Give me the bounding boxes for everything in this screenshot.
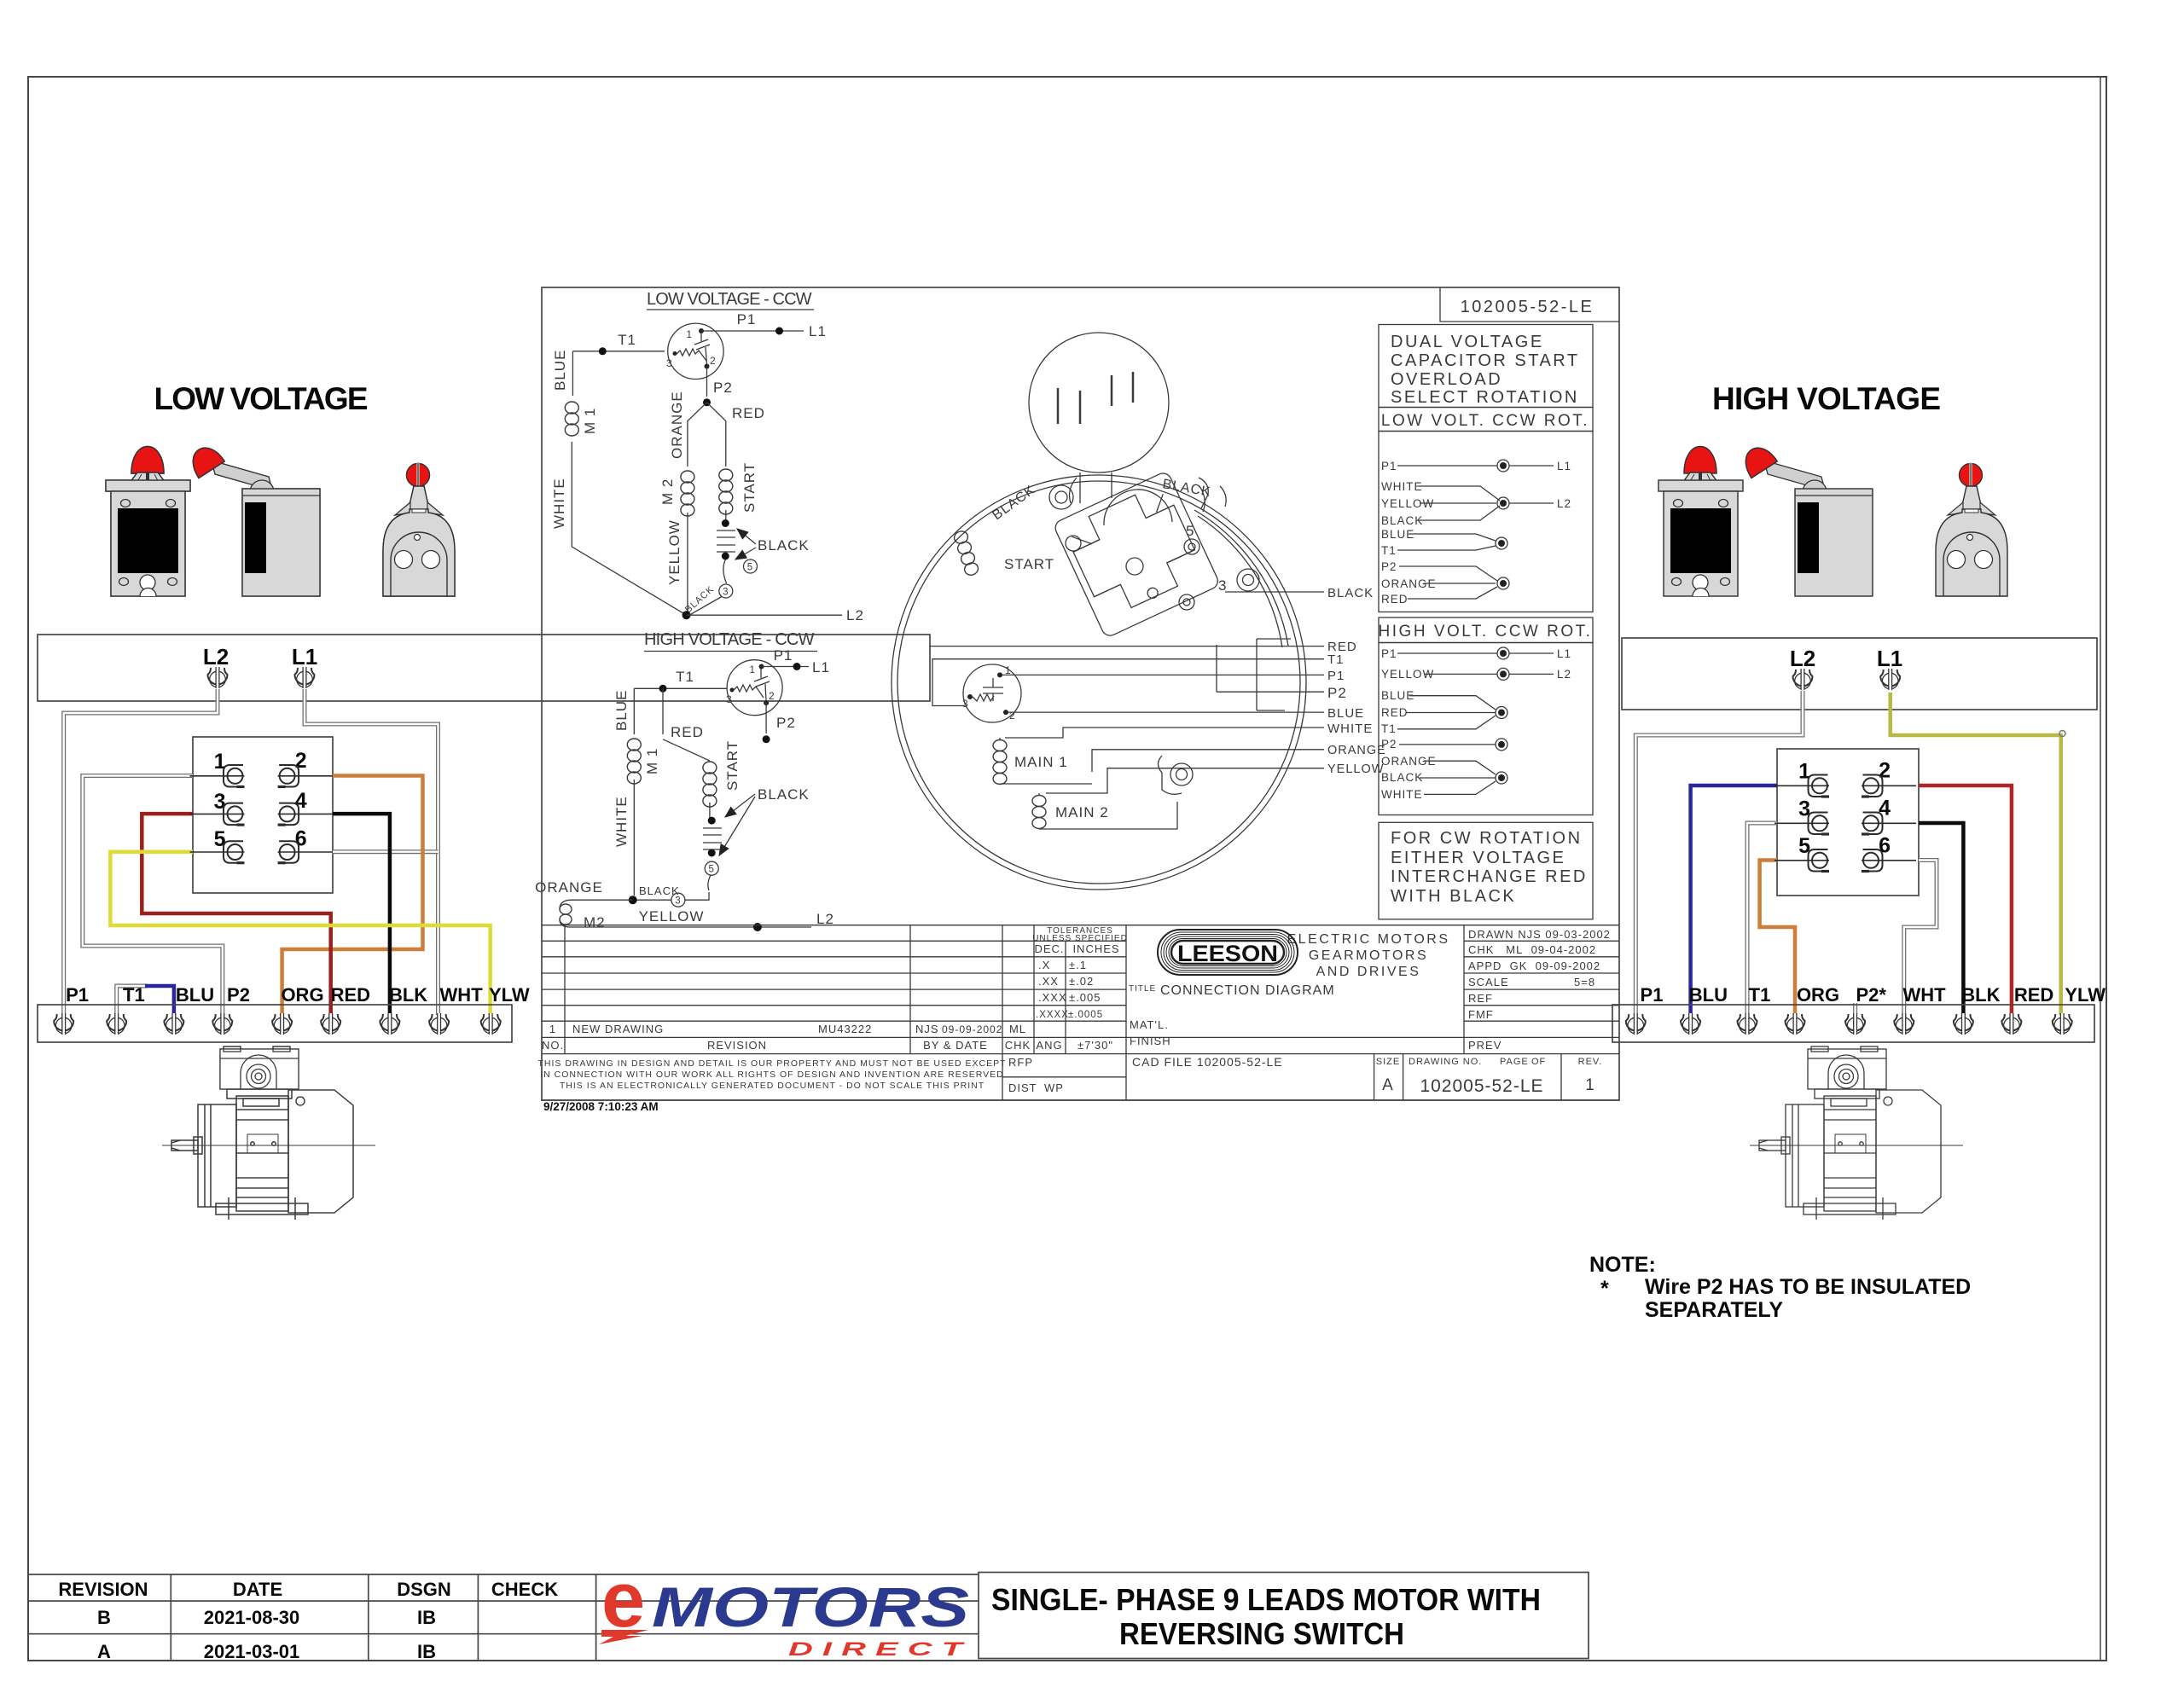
svg-text:5=8: 5=8 xyxy=(1574,976,1595,988)
svg-text:START: START xyxy=(741,462,758,513)
svg-text:DRAWING NO.: DRAWING NO. xyxy=(1409,1057,1482,1067)
svg-text:3: 3 xyxy=(666,357,673,369)
svg-text:3: 3 xyxy=(675,896,681,907)
svg-text:P2: P2 xyxy=(1381,738,1397,751)
svg-text:T1: T1 xyxy=(676,669,694,685)
svg-text:INCHES: INCHES xyxy=(1072,942,1119,955)
svg-text:BLACK: BLACK xyxy=(758,786,810,803)
svg-text:P1: P1 xyxy=(1327,669,1345,683)
svg-text:WHITE: WHITE xyxy=(551,478,567,529)
svg-text:BLUE: BLUE xyxy=(1327,706,1364,721)
svg-text:L2: L2 xyxy=(1790,646,1815,671)
svg-text:YELLOW: YELLOW xyxy=(639,908,705,925)
svg-text:CHK: CHK xyxy=(1005,1039,1031,1052)
svg-text:BLACK: BLACK xyxy=(1327,586,1374,600)
svg-text:REVISION: REVISION xyxy=(58,1579,148,1600)
svg-text:6: 6 xyxy=(295,827,307,851)
svg-text:CHK ML 09-04-2002: CHK ML 09-04-2002 xyxy=(1468,943,1596,956)
svg-text:BLACK: BLACK xyxy=(683,584,717,615)
svg-text:RED: RED xyxy=(331,984,370,1006)
svg-text:LOW VOLTAGE: LOW VOLTAGE xyxy=(154,381,369,416)
svg-text:RED: RED xyxy=(671,724,704,740)
svg-text:SELECT ROTATION: SELECT ROTATION xyxy=(1391,388,1579,407)
svg-text:L1: L1 xyxy=(1557,647,1571,660)
svg-text:DSGN: DSGN xyxy=(397,1579,451,1600)
svg-text:T1: T1 xyxy=(1327,652,1345,667)
svg-text:3: 3 xyxy=(726,693,733,705)
svg-text:REVERSING SWITCH: REVERSING SWITCH xyxy=(1119,1616,1404,1651)
svg-text:3: 3 xyxy=(1218,577,1227,594)
svg-text:102005-52-LE: 102005-52-LE xyxy=(1420,1076,1543,1096)
svg-text:T1: T1 xyxy=(1381,544,1397,557)
svg-text:*: * xyxy=(1600,1277,1609,1301)
svg-text:P2: P2 xyxy=(776,715,796,731)
svg-text:L2: L2 xyxy=(1557,668,1571,681)
svg-text:2: 2 xyxy=(1879,759,1891,783)
svg-text:4: 4 xyxy=(295,789,307,813)
svg-text:IB: IB xyxy=(417,1641,436,1662)
svg-text:BLK: BLK xyxy=(1961,984,2000,1006)
svg-text:RED: RED xyxy=(2014,984,2053,1006)
svg-text:ELECTRIC MOTORS: ELECTRIC MOTORS xyxy=(1287,932,1450,947)
svg-text:AND DRIVES: AND DRIVES xyxy=(1316,965,1421,979)
svg-text:DATE: DATE xyxy=(233,1579,282,1600)
svg-text:P2: P2 xyxy=(1327,685,1347,701)
svg-text:L2: L2 xyxy=(203,644,229,670)
svg-text:CHECK: CHECK xyxy=(491,1579,558,1600)
svg-text:±.005: ±.005 xyxy=(1069,991,1101,1004)
svg-text:1: 1 xyxy=(549,1023,556,1035)
svg-text:3: 3 xyxy=(962,698,969,710)
svg-text:MAIN 1: MAIN 1 xyxy=(1014,754,1068,770)
svg-text:5: 5 xyxy=(1186,523,1194,539)
svg-text:D I R E C T: D I R E C T xyxy=(788,1638,965,1660)
svg-text:1: 1 xyxy=(1585,1076,1595,1094)
svg-text:P1: P1 xyxy=(1641,984,1664,1006)
svg-text:P2: P2 xyxy=(1381,560,1397,573)
svg-text:SINGLE- PHASE 9 LEADS MOTOR WI: SINGLE- PHASE 9 LEADS MOTOR WITH xyxy=(991,1582,1541,1617)
svg-text:MAIN 2: MAIN 2 xyxy=(1055,804,1109,820)
svg-text:PREV: PREV xyxy=(1468,1039,1501,1052)
svg-text:IN CONNECTION WITH OUR WORK AL: IN CONNECTION WITH OUR WORK ALL RIGHTS O… xyxy=(540,1070,1003,1080)
svg-text:±7'30": ±7'30" xyxy=(1077,1039,1113,1052)
svg-text:APPD GK 09-09-2002: APPD GK 09-09-2002 xyxy=(1468,959,1600,972)
svg-text:WHT: WHT xyxy=(1902,984,1946,1006)
svg-text:OVERLOAD: OVERLOAD xyxy=(1391,370,1502,389)
svg-text:T1: T1 xyxy=(1381,722,1397,735)
svg-text:WP: WP xyxy=(1044,1081,1064,1094)
svg-text:1: 1 xyxy=(1005,664,1012,676)
svg-text:WHITE: WHITE xyxy=(1381,480,1423,493)
svg-text:P1: P1 xyxy=(774,647,793,664)
svg-text:YLW: YLW xyxy=(489,984,530,1006)
svg-text:WHITE: WHITE xyxy=(1381,788,1423,801)
svg-text:NOTE:: NOTE: xyxy=(1589,1253,1656,1277)
svg-text:START: START xyxy=(724,740,741,791)
svg-text:IB: IB xyxy=(417,1607,436,1628)
svg-text:MU43222: MU43222 xyxy=(818,1023,872,1035)
svg-text:2: 2 xyxy=(769,690,775,702)
svg-text:RFP: RFP xyxy=(1008,1056,1033,1069)
svg-text:SIZE: SIZE xyxy=(1376,1057,1400,1067)
svg-text:HIGH VOLTAGE - CCW: HIGH VOLTAGE - CCW xyxy=(644,630,816,649)
svg-text:.XXXX: .XXXX xyxy=(1036,1010,1069,1020)
svg-text:M2: M2 xyxy=(584,914,606,930)
svg-text:BLU: BLU xyxy=(176,984,214,1006)
svg-text:L1: L1 xyxy=(1877,646,1902,671)
svg-text:BLK: BLK xyxy=(389,984,427,1006)
svg-text:.XXX: .XXX xyxy=(1038,991,1067,1004)
svg-text:BLU: BLU xyxy=(1689,984,1728,1006)
svg-text:MAT'L.: MAT'L. xyxy=(1130,1018,1169,1031)
svg-text:P1: P1 xyxy=(1381,647,1397,660)
svg-text:FINISH: FINISH xyxy=(1130,1035,1171,1047)
svg-text:9/27/2008 7:10:23 AM: 9/27/2008 7:10:23 AM xyxy=(543,1100,659,1113)
svg-text:09-09-2002: 09-09-2002 xyxy=(942,1023,1002,1035)
svg-text:REVISION: REVISION xyxy=(707,1039,767,1052)
svg-text:L2: L2 xyxy=(1557,497,1571,510)
svg-text:MOTORS: MOTORS xyxy=(652,1575,969,1638)
svg-text:DRAWN NJS 09-03-2002: DRAWN NJS 09-03-2002 xyxy=(1468,928,1611,941)
svg-text:WHT: WHT xyxy=(440,984,484,1006)
svg-text:BLACK: BLACK xyxy=(639,884,680,897)
svg-text:YLW: YLW xyxy=(2065,984,2106,1006)
svg-text:HIGH VOLTAGE: HIGH VOLTAGE xyxy=(1712,381,1941,416)
svg-text:2021-03-01: 2021-03-01 xyxy=(204,1641,300,1662)
svg-text:±.0005: ±.0005 xyxy=(1068,1010,1103,1020)
svg-text:3: 3 xyxy=(723,588,729,598)
svg-text:DEC.: DEC. xyxy=(1034,942,1064,955)
svg-text:L1: L1 xyxy=(1557,460,1571,472)
svg-text:M 1: M 1 xyxy=(582,408,598,434)
svg-text:±.02: ±.02 xyxy=(1069,975,1094,988)
svg-text:P1: P1 xyxy=(66,984,89,1006)
svg-text:THIS DRAWING IN DESIGN AND DET: THIS DRAWING IN DESIGN AND DETAIL IS OUR… xyxy=(538,1058,1007,1069)
svg-text:WHITE: WHITE xyxy=(1327,722,1373,736)
svg-text:BLUE: BLUE xyxy=(552,350,568,391)
svg-text:5: 5 xyxy=(708,865,714,875)
svg-text:RED: RED xyxy=(1381,706,1409,719)
svg-text:ORANGE: ORANGE xyxy=(669,391,685,459)
svg-text:GEARMOTORS: GEARMOTORS xyxy=(1309,948,1428,963)
svg-text:WHITE: WHITE xyxy=(613,796,630,847)
svg-text:BLACK: BLACK xyxy=(1381,514,1423,527)
svg-text:LOW VOLTAGE - CCW: LOW VOLTAGE - CCW xyxy=(647,290,814,309)
svg-text:ORG: ORG xyxy=(281,984,323,1006)
svg-text:M 2: M 2 xyxy=(659,478,676,505)
svg-text:102005-52-LE: 102005-52-LE xyxy=(1461,298,1594,316)
svg-text:P1: P1 xyxy=(1381,460,1397,472)
svg-text:4: 4 xyxy=(1879,797,1891,820)
svg-text:ORANGE: ORANGE xyxy=(535,879,603,896)
svg-text:CAD FILE 102005-52-LE: CAD FILE 102005-52-LE xyxy=(1132,1055,1283,1069)
svg-text:RED: RED xyxy=(732,405,765,421)
svg-text:BY & DATE: BY & DATE xyxy=(923,1039,988,1052)
svg-text:DUAL VOLTAGE: DUAL VOLTAGE xyxy=(1391,333,1544,351)
svg-text:CONNECTION DIAGRAM: CONNECTION DIAGRAM xyxy=(1160,983,1335,998)
svg-text:.X: .X xyxy=(1038,959,1050,971)
svg-text:REV.: REV. xyxy=(1578,1057,1603,1067)
svg-text:PAGE: PAGE xyxy=(1500,1057,1529,1067)
svg-text:M 1: M 1 xyxy=(644,748,660,774)
svg-text:FMF: FMF xyxy=(1468,1008,1494,1021)
svg-text:P2: P2 xyxy=(227,984,250,1006)
svg-text:SEPARATELY: SEPARATELY xyxy=(1645,1298,1783,1322)
svg-text:B: B xyxy=(97,1607,111,1628)
svg-text:BLACK: BLACK xyxy=(1381,771,1423,784)
svg-text:T1: T1 xyxy=(1749,984,1771,1006)
svg-text:L2: L2 xyxy=(846,607,864,623)
svg-text:INTERCHANGE RED: INTERCHANGE RED xyxy=(1391,867,1588,886)
svg-text:NJS: NJS xyxy=(915,1023,939,1035)
svg-text:BLACK: BLACK xyxy=(990,483,1037,524)
svg-text:P1: P1 xyxy=(737,311,757,328)
svg-text:CAPACITOR START: CAPACITOR START xyxy=(1391,351,1580,370)
svg-text:2021-08-30: 2021-08-30 xyxy=(204,1607,300,1628)
svg-text:P2: P2 xyxy=(713,380,733,396)
svg-text:WITH BLACK: WITH BLACK xyxy=(1391,887,1516,906)
svg-text:ANG: ANG xyxy=(1036,1039,1062,1052)
svg-text:L1: L1 xyxy=(812,659,830,675)
svg-text:RED: RED xyxy=(1381,593,1409,606)
svg-text:ORG: ORG xyxy=(1797,984,1839,1006)
svg-text:TITLE: TITLE xyxy=(1129,984,1156,994)
svg-text:FOR CW ROTATION: FOR CW ROTATION xyxy=(1391,829,1583,848)
svg-text:P2*: P2* xyxy=(1856,984,1886,1006)
svg-text:A: A xyxy=(1382,1076,1394,1094)
svg-text:LEESON: LEESON xyxy=(1177,941,1278,966)
svg-text:NO.: NO. xyxy=(542,1039,564,1052)
svg-text:LOW VOLT. CCW ROT.: LOW VOLT. CCW ROT. xyxy=(1381,412,1589,430)
svg-text:T1: T1 xyxy=(618,332,636,348)
svg-text:BLACK: BLACK xyxy=(758,537,810,554)
svg-text:1: 1 xyxy=(686,328,693,340)
svg-text:6: 6 xyxy=(1879,834,1891,858)
svg-text:OF: OF xyxy=(1531,1057,1546,1067)
svg-text:L1: L1 xyxy=(292,644,317,670)
svg-text:START: START xyxy=(1004,556,1054,572)
svg-text:THIS IS AN ELECTRONICALLY GENE: THIS IS AN ELECTRONICALLY GENERATED DOCU… xyxy=(560,1081,985,1091)
svg-text:NEW DRAWING: NEW DRAWING xyxy=(572,1023,664,1035)
svg-text:±.1: ±.1 xyxy=(1069,959,1087,971)
svg-text:DIST: DIST xyxy=(1008,1081,1037,1094)
svg-text:1: 1 xyxy=(749,664,756,675)
svg-text:2: 2 xyxy=(295,749,307,773)
svg-text:A: A xyxy=(97,1641,111,1662)
svg-text:HIGH VOLT. CCW ROT.: HIGH VOLT. CCW ROT. xyxy=(1379,623,1593,641)
svg-text:REF: REF xyxy=(1468,992,1493,1005)
svg-text:BLUE: BLUE xyxy=(613,690,630,731)
svg-text:2: 2 xyxy=(1009,710,1016,722)
svg-text:EITHER VOLTAGE: EITHER VOLTAGE xyxy=(1391,849,1565,867)
svg-text:.XX: .XX xyxy=(1038,975,1059,988)
svg-text:L1: L1 xyxy=(809,323,827,339)
svg-text:SCALE: SCALE xyxy=(1468,976,1509,988)
svg-text:Wire P2 HAS TO BE INSULATED: Wire P2 HAS TO BE INSULATED xyxy=(1645,1275,1971,1299)
svg-text:2: 2 xyxy=(710,355,717,367)
svg-text:5: 5 xyxy=(747,563,753,573)
svg-text:ORANGE: ORANGE xyxy=(1327,744,1386,757)
svg-text:YELLOW: YELLOW xyxy=(1327,762,1384,776)
svg-text:ML: ML xyxy=(1009,1023,1026,1035)
svg-text:YELLOW: YELLOW xyxy=(666,519,682,585)
svg-text:T1: T1 xyxy=(123,984,145,1006)
